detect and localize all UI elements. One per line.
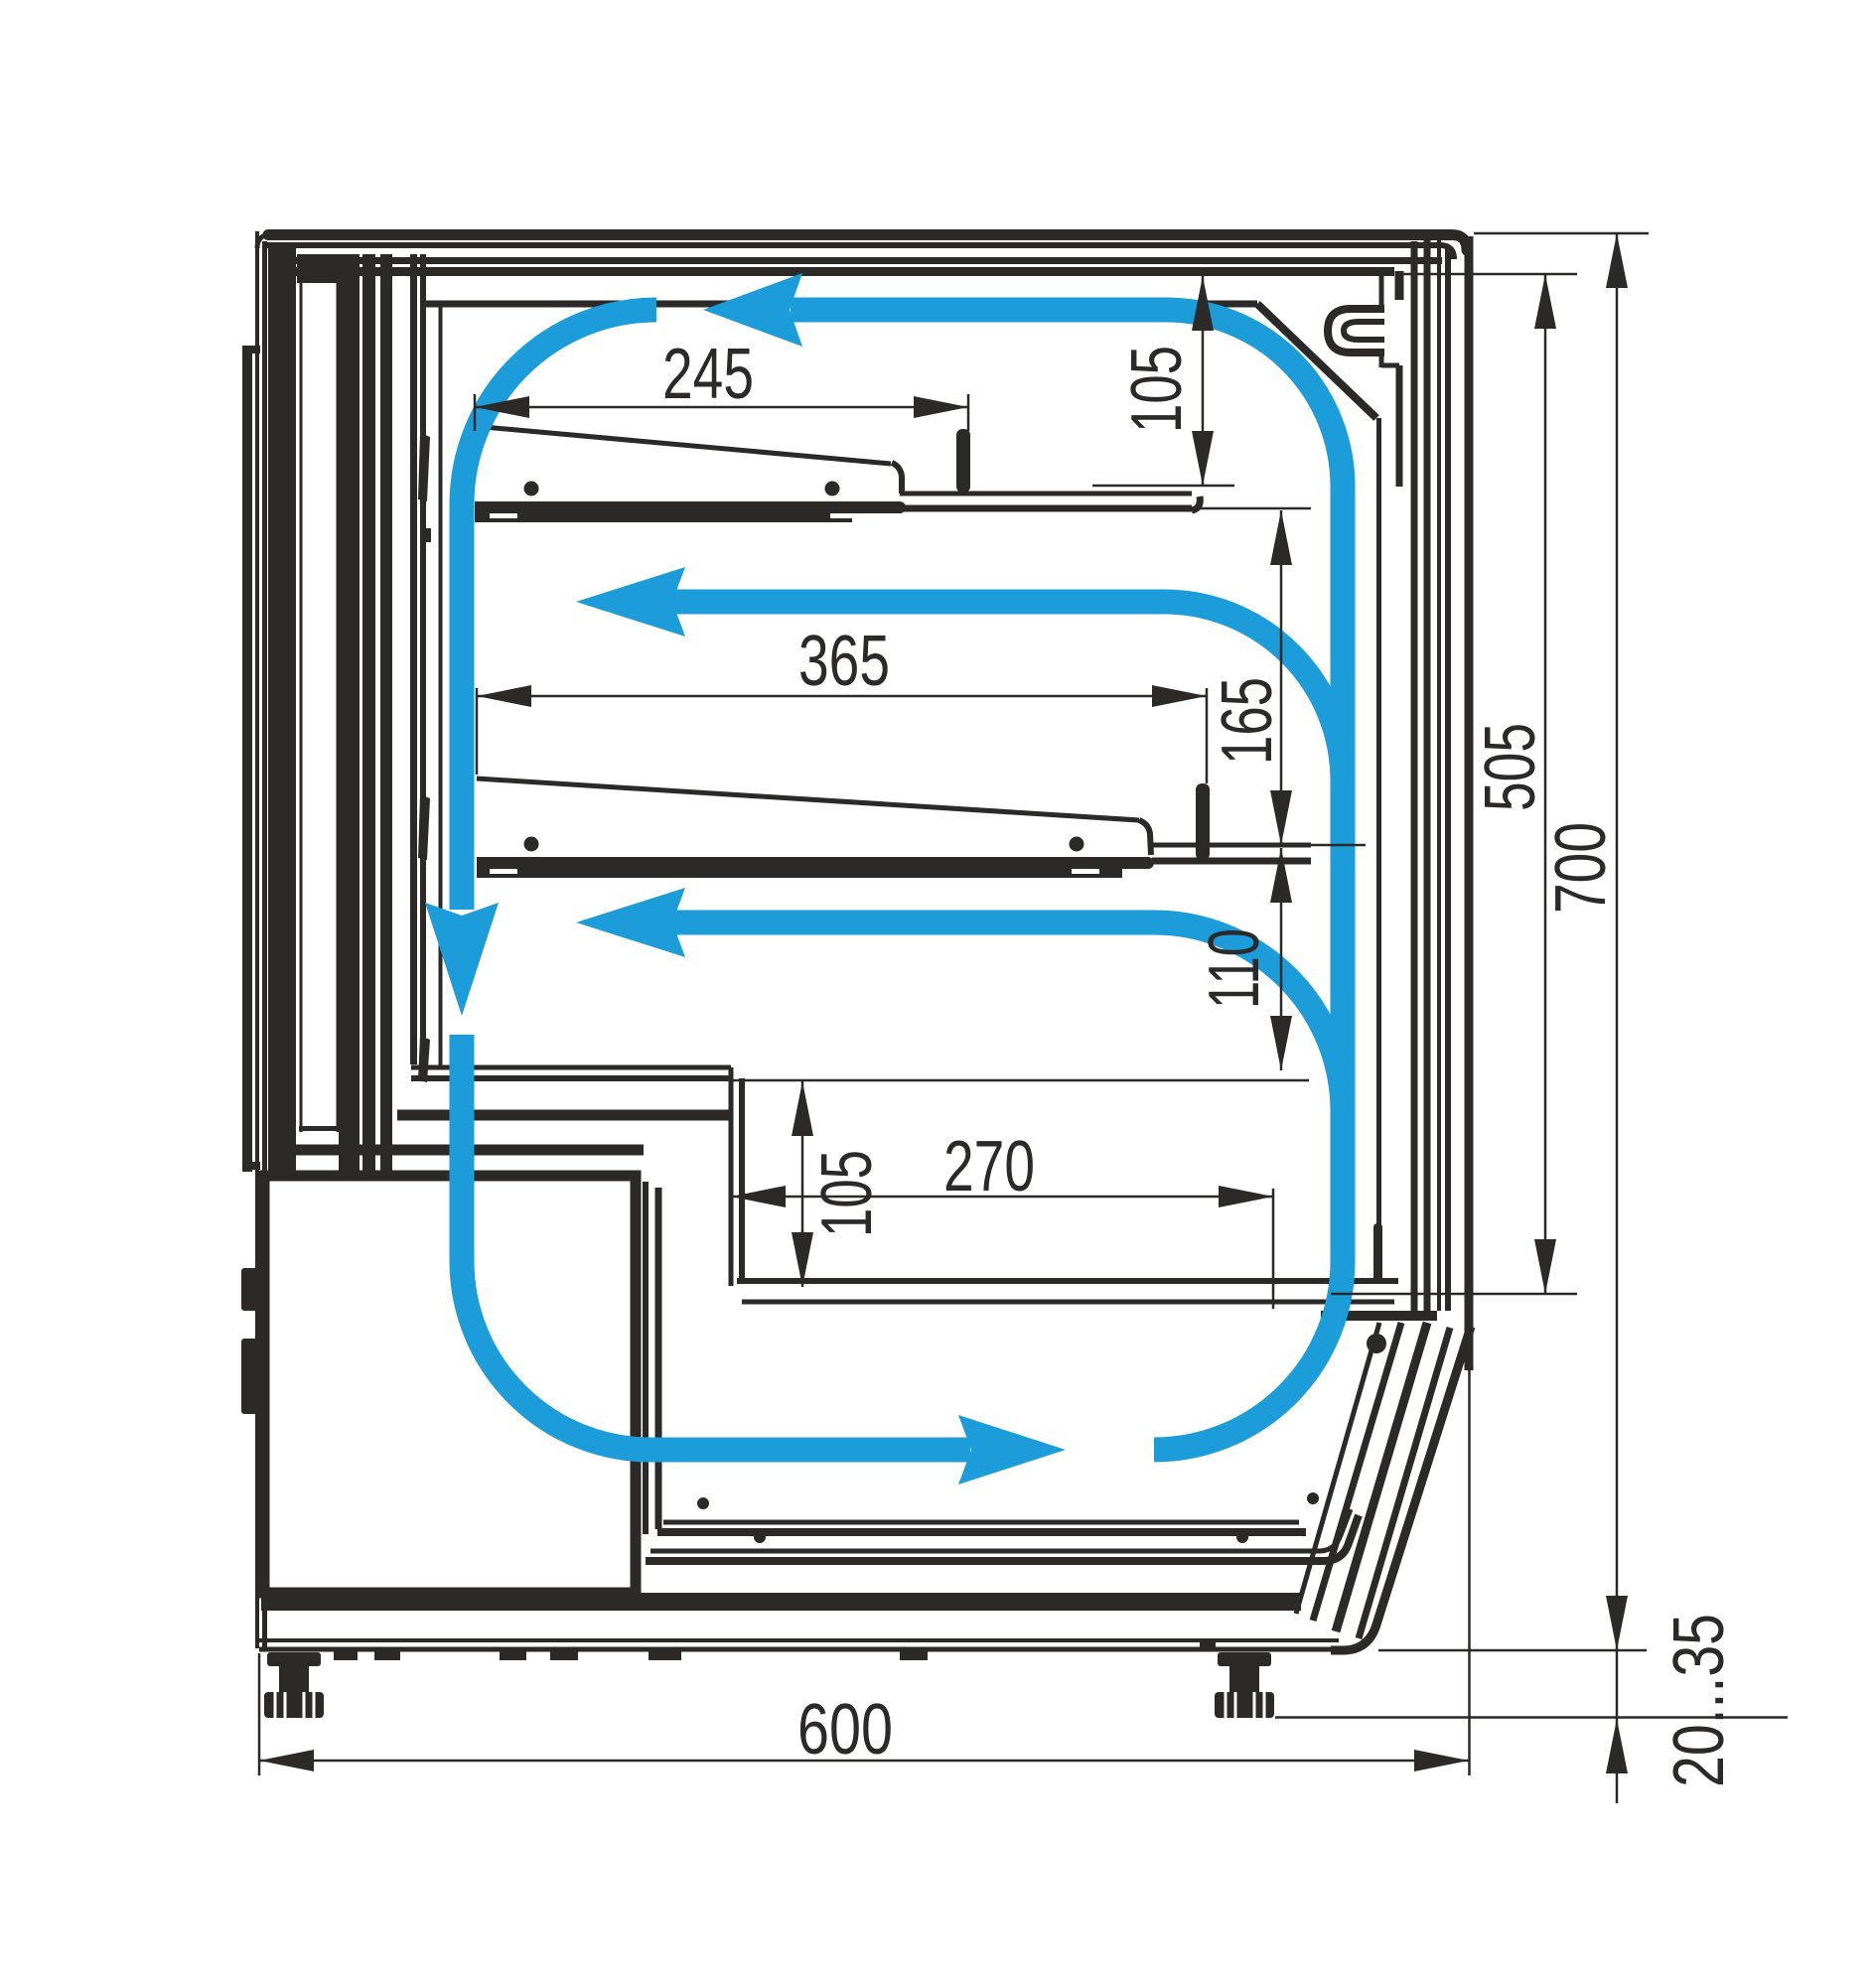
svg-text:110: 110 xyxy=(1195,928,1274,1009)
svg-text:105: 105 xyxy=(807,1150,887,1237)
svg-text:365: 365 xyxy=(798,622,890,701)
svg-text:505: 505 xyxy=(1471,723,1550,811)
svg-text:165: 165 xyxy=(1208,677,1287,765)
svg-text:700: 700 xyxy=(1541,822,1621,914)
svg-text:245: 245 xyxy=(662,335,754,414)
svg-text:105: 105 xyxy=(1117,346,1197,433)
svg-text:20...35: 20...35 xyxy=(1660,1614,1739,1787)
svg-text:600: 600 xyxy=(797,1690,893,1769)
svg-text:270: 270 xyxy=(943,1127,1035,1206)
